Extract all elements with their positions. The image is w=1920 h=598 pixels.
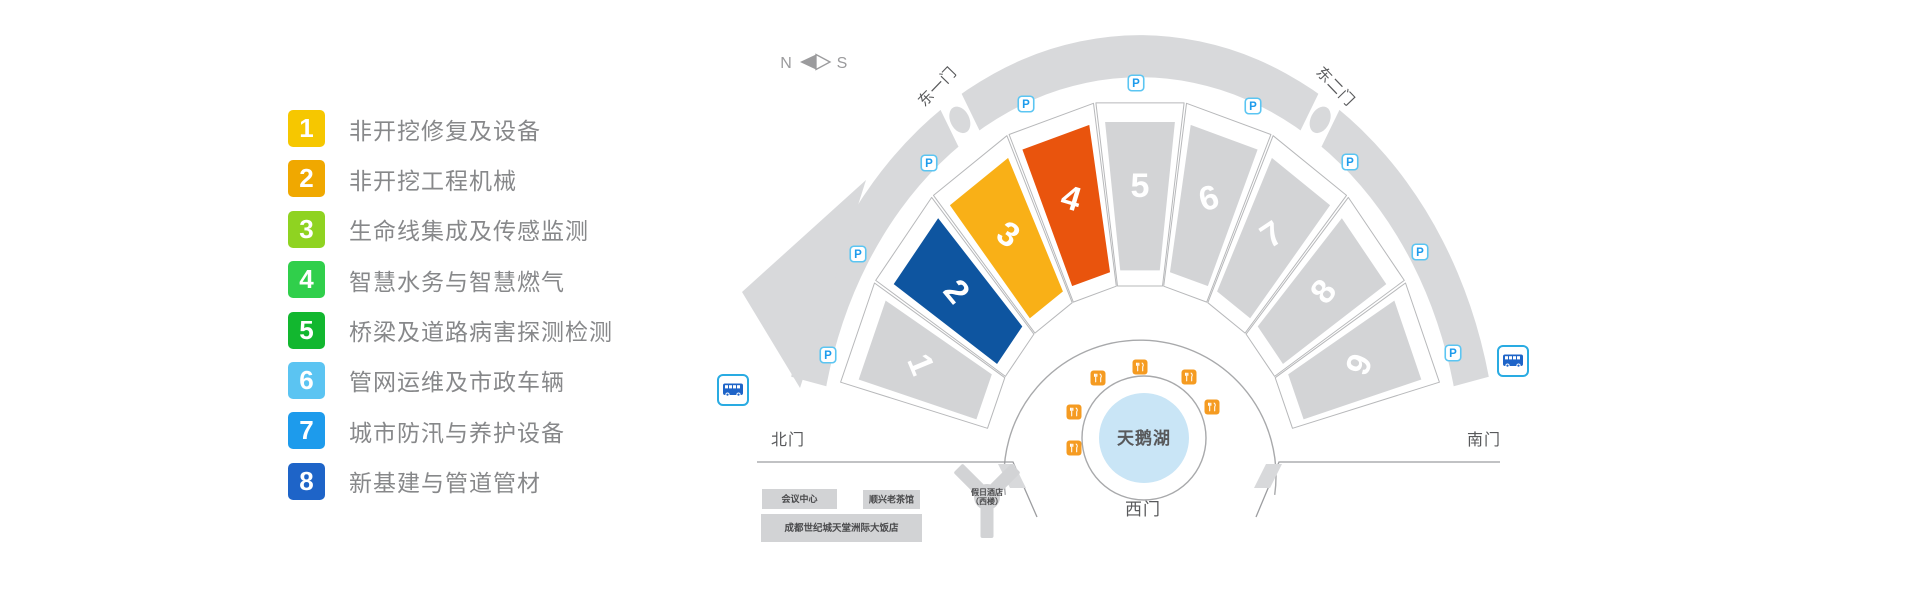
restaurant-icon [1067, 441, 1082, 456]
restaurant-icon-bg [1067, 441, 1082, 456]
parking-icon-letter: P [1249, 101, 1257, 113]
bus-window [1513, 356, 1516, 359]
venue-map-page: 1 非开挖修复及设备 2 非开挖工程机械 3 生命线集成及传感监测 4 智慧水务… [0, 0, 1920, 598]
bus-wheel [1517, 365, 1519, 367]
bus-window [725, 385, 728, 388]
bus-stop-icon [718, 375, 748, 405]
parking-icon-letter: P [854, 249, 862, 261]
parking-icon-letter: P [1346, 157, 1354, 169]
compass-south-label: S [837, 55, 848, 72]
compass-north-label: N [780, 55, 792, 72]
bus-window [729, 385, 732, 388]
restaurant-icon-bg [1091, 371, 1106, 386]
restaurant-icon-bg [1067, 405, 1082, 420]
restaurant-icon-bg [1205, 400, 1220, 415]
compass-needle-north [800, 55, 816, 70]
south-gate-label: 南门 [1467, 431, 1501, 449]
hall-number-5: 5 [1131, 167, 1150, 205]
bus-window [737, 385, 740, 388]
parking-icon-letter: P [1132, 78, 1140, 90]
bus-window [1517, 356, 1520, 359]
parking-icon-letter: P [1449, 348, 1457, 360]
bus-wheel [1506, 365, 1508, 367]
north-gate-label: 北门 [771, 431, 805, 449]
bus-stop-icon [1498, 346, 1528, 376]
building-label: 会议中心 [781, 493, 817, 504]
parking-icon-letter: P [1416, 247, 1424, 259]
bus-wheel [737, 394, 739, 396]
parking-icon-letter: P [824, 350, 832, 362]
restaurant-icon [1067, 405, 1082, 420]
parking-icon-letter: P [1022, 99, 1030, 111]
building-wing [981, 506, 994, 538]
swan-lake-label: 天鹅湖 [1117, 428, 1171, 448]
restaurant-icon [1205, 400, 1220, 415]
bus-window [733, 385, 736, 388]
road-south-side [1256, 462, 1500, 517]
restaurant-icon [1182, 370, 1197, 385]
restaurant-icon-bg [1133, 360, 1148, 375]
restaurant-icon [1091, 371, 1106, 386]
building-label: （西楼） [971, 496, 1003, 506]
bus-window [1509, 356, 1512, 359]
building-label: 假日酒店 [971, 487, 1003, 497]
building-label: 成都世纪城天堂洲际大饭店 [784, 522, 899, 534]
restaurant-icon [1133, 360, 1148, 375]
building-label: 顺兴老茶馆 [869, 494, 914, 505]
restaurant-icon-bg [1182, 370, 1197, 385]
bus-wheel [726, 394, 728, 396]
path-strip-right [1254, 464, 1282, 488]
bus-window [1505, 356, 1508, 359]
venue-map: 东一门东二门123456789天鹅湖会议中心顺兴老茶馆成都世纪城天堂洲际大饭店假… [0, 0, 1920, 598]
parking-icon-letter: P [925, 158, 933, 170]
compass-needle-south [816, 55, 830, 70]
west-gate-label: 西门 [1125, 500, 1161, 519]
